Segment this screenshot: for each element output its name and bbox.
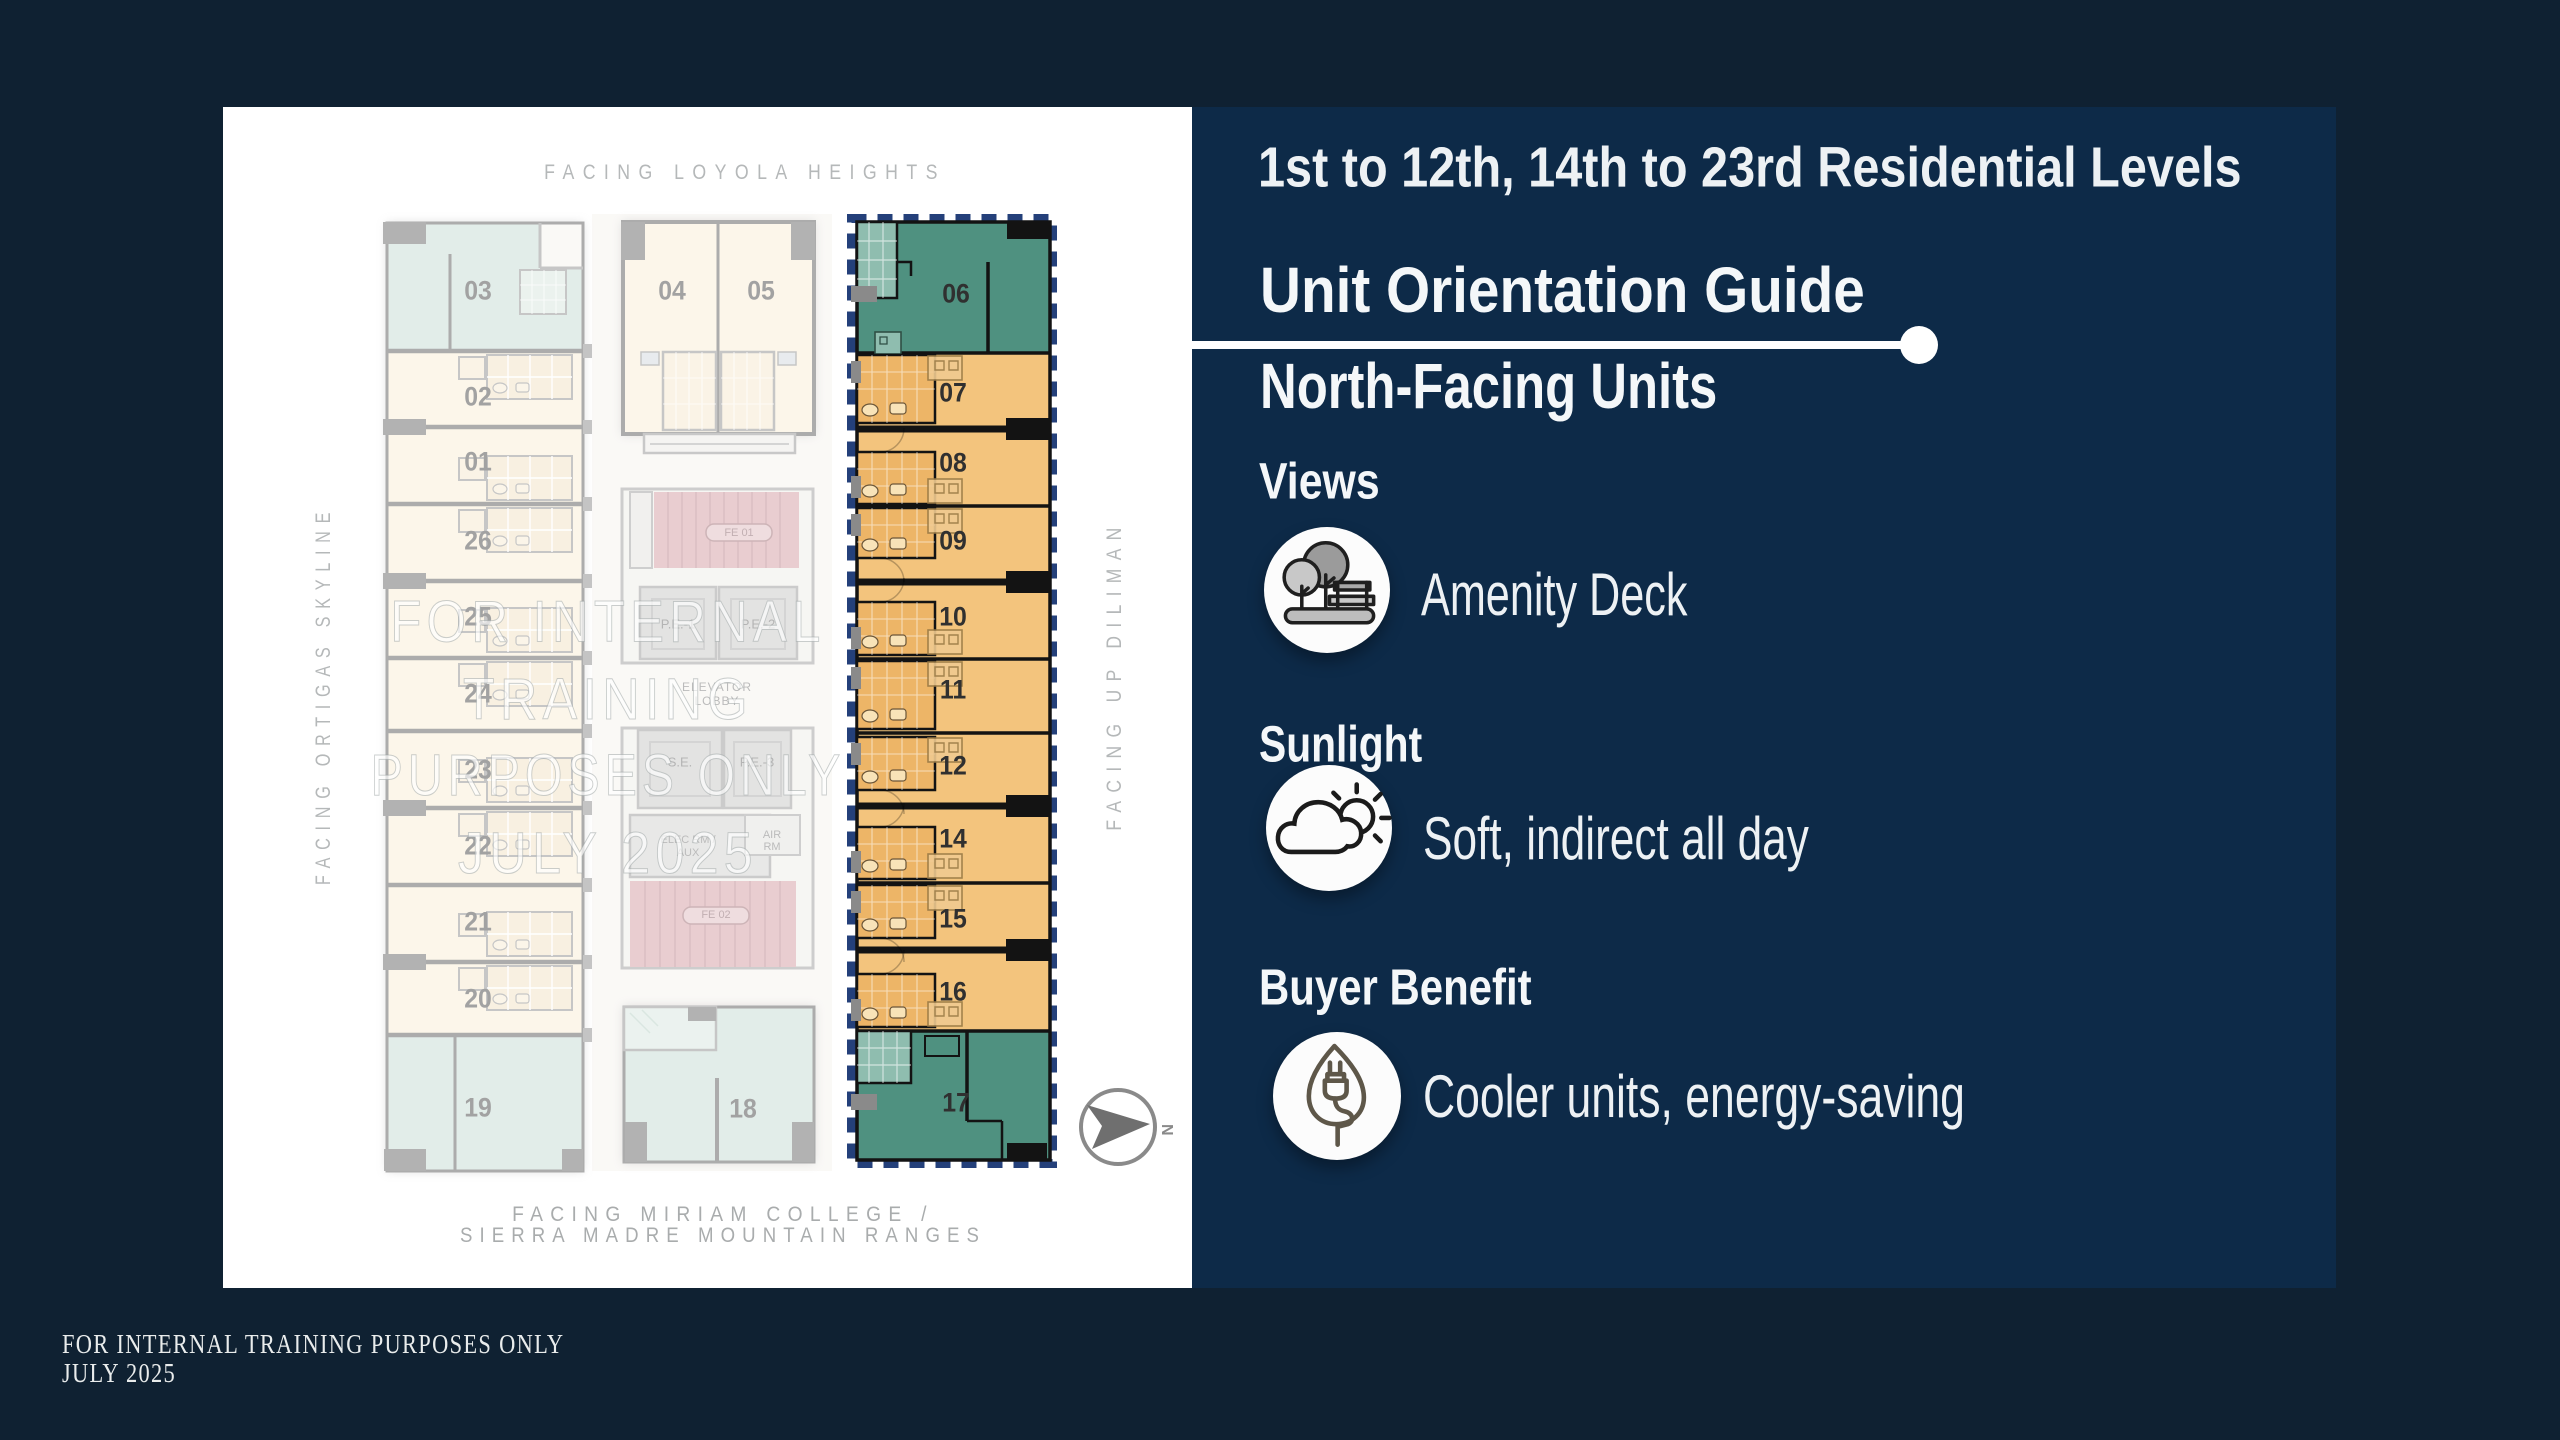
svg-text:07: 07 (939, 378, 967, 407)
svg-text:11: 11 (940, 675, 966, 704)
svg-text:17: 17 (942, 1088, 970, 1117)
svg-text:08: 08 (939, 448, 967, 477)
svg-text:16: 16 (939, 977, 967, 1006)
svg-text:N: N (1158, 1124, 1175, 1136)
svg-text:FACING UP DILIMAN: FACING UP DILIMAN (1104, 519, 1127, 830)
svg-text:10: 10 (939, 602, 967, 631)
svg-text:FACING LOYOLA HEIGHTS: FACING LOYOLA HEIGHTS (544, 161, 946, 185)
svg-text:06: 06 (942, 279, 970, 308)
svg-text:FACING MIRIAM COLLEGE /: FACING MIRIAM COLLEGE / (512, 1203, 934, 1226)
svg-text:FOR INTERNAL: FOR INTERNAL (390, 590, 825, 655)
svg-text:12: 12 (939, 751, 967, 780)
svg-text:SIERRA MADRE MOUNTAIN RANGES: SIERRA MADRE MOUNTAIN RANGES (460, 1224, 986, 1247)
svg-text:14: 14 (939, 824, 967, 853)
svg-text:FACING ORTIGAS SKYLINE: FACING ORTIGAS SKYLINE (311, 505, 335, 885)
svg-text:JULY 2025: JULY 2025 (458, 820, 758, 885)
svg-text:TRAINING: TRAINING (463, 666, 753, 731)
svg-text:15: 15 (939, 904, 967, 933)
svg-text:09: 09 (939, 526, 967, 555)
svg-text:PURPOSES ONLY: PURPOSES ONLY (371, 744, 846, 808)
